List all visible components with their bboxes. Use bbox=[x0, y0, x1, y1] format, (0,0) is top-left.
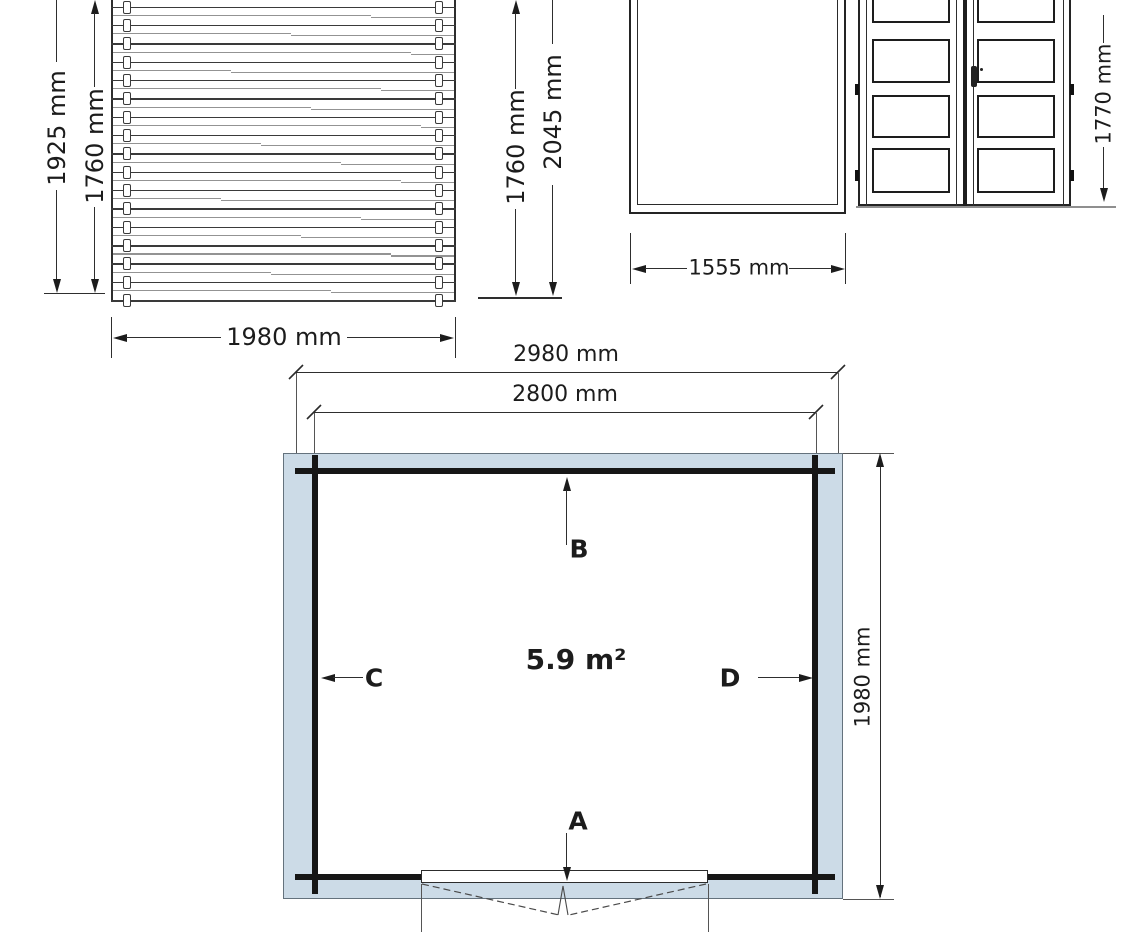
plank-notch-tab bbox=[123, 37, 131, 50]
plank-grain-line bbox=[113, 162, 341, 163]
plank-boundary-line bbox=[111, 62, 456, 64]
hinge-icon bbox=[1070, 84, 1074, 95]
plank-grain-line bbox=[113, 217, 361, 218]
dim-1555-arrow-right-icon bbox=[831, 265, 845, 273]
dim-depth-arrow-up-icon bbox=[876, 453, 884, 467]
dim-2980-ext-left bbox=[296, 373, 297, 453]
plank-notch-tab bbox=[123, 166, 131, 179]
marker-b-line bbox=[566, 490, 567, 545]
plan-wall-line-left bbox=[312, 455, 318, 894]
dim-2980-ext-right bbox=[838, 373, 839, 453]
marker-d-label: D bbox=[720, 666, 741, 691]
dim-1760-mid-arrow-up-icon bbox=[512, 0, 520, 14]
marker-a-arrow-icon bbox=[563, 867, 571, 881]
plank-notch-tab bbox=[435, 147, 443, 160]
plank-grain-line bbox=[391, 255, 454, 256]
marker-d-arrow-icon bbox=[799, 674, 813, 682]
plank-grain-line bbox=[113, 15, 371, 16]
plank-grain-line bbox=[113, 107, 311, 108]
plank-boundary-line bbox=[111, 98, 456, 100]
dim-1555-tick-left bbox=[630, 233, 631, 284]
plank-boundary-line bbox=[111, 245, 456, 247]
dim-1760-left-arrow-down-icon bbox=[91, 279, 99, 293]
door-panel bbox=[977, 95, 1055, 138]
dim-depth-ext-bottom bbox=[843, 899, 894, 900]
plank-notch-tab bbox=[123, 92, 131, 105]
marker-b-arrow-icon bbox=[563, 477, 571, 491]
dim-1770-arrow-down-icon bbox=[1100, 188, 1108, 202]
double-door-divider bbox=[963, 0, 968, 206]
hinge-icon bbox=[1070, 170, 1074, 181]
plank-grain-line bbox=[113, 88, 381, 89]
door-panel bbox=[977, 148, 1055, 193]
plan-wall-line-top bbox=[295, 468, 835, 474]
hinge-icon bbox=[855, 170, 859, 181]
plank-notch-tab bbox=[123, 294, 131, 307]
door-right-inner-stile-line bbox=[973, 0, 974, 206]
marker-b-label: B bbox=[569, 537, 588, 562]
dim-middle-ridge-height: 2045 mm bbox=[541, 54, 565, 169]
plank-grain-line bbox=[331, 292, 454, 293]
plank-notch-tab bbox=[123, 221, 131, 234]
plank-notch-tab bbox=[435, 92, 443, 105]
door-right-stile-line bbox=[1063, 0, 1064, 206]
side-wall-planks bbox=[111, 0, 456, 301]
door-panel bbox=[872, 39, 950, 83]
plank-notch-tab bbox=[435, 111, 443, 124]
plank-notch-tab bbox=[435, 257, 443, 270]
dim-line-2045-lower bbox=[552, 185, 553, 283]
door-left-stile-line bbox=[866, 0, 867, 206]
plank-notch-tab bbox=[435, 37, 443, 50]
plank-boundary-line bbox=[111, 208, 456, 210]
plank-boundary-line bbox=[111, 80, 456, 82]
marker-a-line bbox=[566, 833, 567, 869]
dim-1555-line-left bbox=[645, 268, 687, 269]
plank-grain-line bbox=[311, 109, 454, 110]
plank-boundary-line bbox=[111, 7, 456, 9]
plank-grain-line bbox=[291, 35, 454, 36]
dim-1555-arrow-left-icon bbox=[632, 265, 646, 273]
dim-side-wall-height: 1760 mm bbox=[83, 88, 107, 203]
plank-boundary-line bbox=[111, 43, 456, 45]
plank-grain-line bbox=[271, 274, 454, 275]
door-frame-inner bbox=[637, 0, 838, 205]
plank-grain-line bbox=[421, 127, 454, 128]
plank-notch-tab bbox=[435, 129, 443, 142]
hinge-icon bbox=[855, 84, 859, 95]
dim-frame-width: 1555 mm bbox=[688, 258, 789, 279]
plank-grain-line bbox=[113, 125, 421, 126]
plank-grain-line bbox=[301, 237, 454, 238]
dim-line-1760L-upper bbox=[94, 13, 95, 87]
dim-depth-arrow-down-icon bbox=[876, 885, 884, 899]
dim-1980-arrow-left-icon bbox=[113, 334, 127, 342]
plank-grain-line bbox=[113, 180, 401, 181]
plank-boundary-line bbox=[111, 153, 456, 155]
plank-notch-tab bbox=[435, 294, 443, 307]
plank-grain-line bbox=[231, 72, 454, 73]
plank-notch-tab bbox=[123, 276, 131, 289]
dim-line-1760M-lower bbox=[515, 209, 516, 283]
side-wall-left-edge bbox=[111, 0, 113, 301]
dim-1980-arrow-right-icon bbox=[440, 334, 454, 342]
technical-drawing-canvas: 1925 mm 1760 mm 1980 mm 1760 mm 2045 mm … bbox=[0, 0, 1142, 932]
door-left-inner-stile-line bbox=[956, 0, 957, 206]
plank-boundary-line bbox=[111, 227, 456, 229]
dim-1760-mid-arrow-down-icon bbox=[512, 282, 520, 296]
plank-notch-tab bbox=[435, 19, 443, 32]
door-panel bbox=[977, 0, 1055, 23]
plank-notch-tab bbox=[435, 239, 443, 252]
door-panel bbox=[872, 95, 950, 138]
dim-baseline-middle bbox=[478, 297, 562, 299]
plan-door-ext-left bbox=[421, 884, 422, 932]
plank-grain-line bbox=[411, 54, 454, 55]
plank-boundary-line bbox=[111, 190, 456, 192]
plan-door-ext-right bbox=[708, 884, 709, 932]
plank-grain-line bbox=[371, 17, 454, 18]
plank-grain-line bbox=[113, 143, 261, 144]
dim-line-2045-upper bbox=[552, 0, 553, 44]
plank-grain-line bbox=[113, 33, 291, 34]
plank-notch-tab bbox=[435, 166, 443, 179]
dim-plan-outer-width: 2980 mm bbox=[513, 344, 619, 366]
door-handle-dot-icon bbox=[980, 68, 983, 71]
dim-1980-line-right bbox=[347, 337, 441, 338]
plank-boundary-line bbox=[111, 117, 456, 119]
plan-wall-line-bottom-right bbox=[707, 874, 835, 880]
plank-notch-tab bbox=[123, 111, 131, 124]
dim-1925-arrow-down-icon bbox=[53, 279, 61, 293]
dim-plan-inner-width: 2800 mm bbox=[512, 384, 618, 406]
dim-2800-ext-right bbox=[816, 413, 817, 453]
plank-notch-tab bbox=[123, 147, 131, 160]
plank-grain-line bbox=[361, 219, 454, 220]
dim-line-1925-lower bbox=[56, 190, 57, 282]
dim-2800-ext-left bbox=[314, 413, 315, 453]
dim-1555-tick-right bbox=[845, 233, 846, 284]
dim-2980-line bbox=[296, 372, 838, 373]
plank-grain-line bbox=[261, 145, 454, 146]
plank-boundary-line bbox=[111, 263, 456, 265]
plank-boundary-line bbox=[111, 282, 456, 284]
plank-grain-line bbox=[221, 200, 454, 201]
plank-notch-tab bbox=[123, 1, 131, 14]
plank-notch-tab bbox=[435, 276, 443, 289]
dim-1980-tick-left bbox=[111, 317, 112, 358]
plank-boundary-line bbox=[111, 135, 456, 137]
marker-c-line bbox=[333, 677, 363, 678]
plank-notch-tab bbox=[123, 239, 131, 252]
plank-notch-tab bbox=[123, 184, 131, 197]
dim-plan-depth: 1980 mm bbox=[853, 626, 874, 727]
dim-side-wall-total-height: 1925 mm bbox=[45, 70, 69, 185]
dim-line-1925-upper bbox=[56, 0, 57, 62]
plank-grain-line bbox=[113, 290, 331, 291]
plank-notch-tab bbox=[123, 129, 131, 142]
plank-grain-line bbox=[401, 182, 454, 183]
marker-a-label: A bbox=[568, 809, 587, 834]
plank-grain-line bbox=[113, 52, 411, 53]
plank-grain-line bbox=[113, 272, 271, 273]
door-handle-icon bbox=[971, 66, 977, 87]
plank-grain-line bbox=[113, 70, 231, 71]
plank-grain-line bbox=[341, 164, 454, 165]
dim-depth-ext-top bbox=[843, 453, 894, 454]
dim-2045-arrow-down-icon bbox=[549, 282, 557, 296]
dim-line-1770-lower bbox=[1103, 147, 1104, 189]
plank-notch-tab bbox=[435, 1, 443, 14]
plank-notch-tab bbox=[123, 19, 131, 32]
plank-grain-line bbox=[113, 235, 301, 236]
plank-notch-tab bbox=[123, 74, 131, 87]
marker-d-line bbox=[758, 677, 800, 678]
plank-boundary-line bbox=[111, 25, 456, 27]
dim-depth-line bbox=[880, 456, 881, 897]
plan-wall-line-bottom-left bbox=[295, 874, 421, 880]
dim-1980-line-left bbox=[126, 337, 221, 338]
plan-area-label: 5.9 m² bbox=[526, 646, 627, 674]
dim-1980-tick-right bbox=[455, 317, 456, 358]
dim-door-height: 1770 mm bbox=[1094, 43, 1115, 144]
dim-side-wall-width: 1980 mm bbox=[226, 325, 341, 349]
dim-baseline-left bbox=[44, 293, 105, 294]
plank-boundary-line bbox=[111, 300, 456, 302]
plank-notch-tab bbox=[435, 56, 443, 69]
dim-line-1760M-upper bbox=[515, 13, 516, 89]
plank-notch-tab bbox=[435, 184, 443, 197]
plank-boundary-line bbox=[111, 172, 456, 174]
dim-1760-left-arrow-up-icon bbox=[91, 0, 99, 14]
door-panel bbox=[872, 148, 950, 193]
dim-line-1760L-lower bbox=[94, 207, 95, 280]
plank-notch-tab bbox=[435, 202, 443, 215]
door-ground-line bbox=[856, 206, 1116, 208]
dim-1555-line-right bbox=[789, 268, 832, 269]
marker-c-label: C bbox=[365, 666, 383, 691]
dim-line-1770-upper bbox=[1103, 15, 1104, 43]
plank-notch-tab bbox=[435, 221, 443, 234]
plank-notch-tab bbox=[435, 74, 443, 87]
plank-grain-line bbox=[381, 90, 454, 91]
door-panel bbox=[977, 39, 1055, 83]
dim-middle-wall-height: 1760 mm bbox=[504, 89, 528, 204]
plank-notch-tab bbox=[123, 202, 131, 215]
plank-grain-line bbox=[113, 253, 391, 254]
door-panel bbox=[872, 0, 950, 23]
plank-grain-line bbox=[113, 198, 221, 199]
plank-notch-tab bbox=[123, 56, 131, 69]
plank-notch-tab bbox=[123, 257, 131, 270]
side-wall-right-edge bbox=[454, 0, 456, 301]
dim-2800-line bbox=[314, 412, 816, 413]
